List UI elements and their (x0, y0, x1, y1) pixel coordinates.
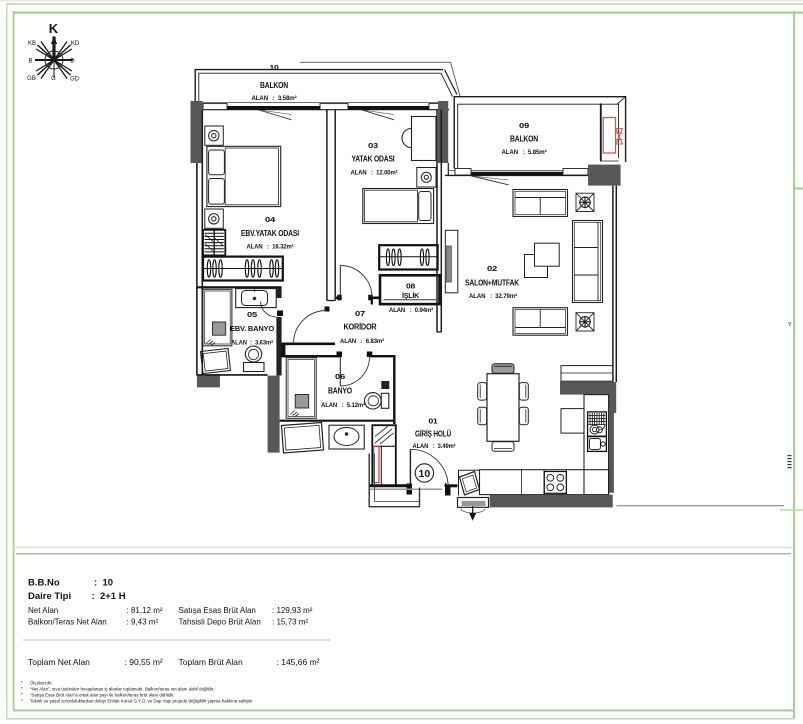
svg-text:GB: GB (27, 76, 36, 82)
svg-text:D: D (70, 59, 75, 65)
svg-text:02: 02 (487, 264, 497, 273)
svg-text:06: 06 (335, 372, 345, 381)
svg-text:Satışa Esas Brüt Alan: Satışa Esas Brüt Alan (179, 606, 256, 615)
svg-text:ALAN : 0.94m²: ALAN : 0.94m² (389, 307, 433, 314)
svg-text:: 9,43 m²: : 9,43 m² (127, 618, 159, 627)
svg-text:ALAN : 6.83m²: ALAN : 6.83m² (340, 338, 384, 345)
svg-text:: 81,12 m²: : 81,12 m² (127, 606, 163, 615)
svg-text:Daire Tipi: Daire Tipi (28, 591, 71, 602)
svg-text:08: 08 (406, 284, 415, 291)
svg-text:İŞLİK: İŞLİK (402, 292, 419, 300)
svg-text:KD: KD (71, 41, 80, 47)
svg-text:: 129,93 m²: : 129,93 m² (272, 606, 313, 615)
svg-text:Toplam Net Alan: Toplam Net Alan (28, 657, 90, 667)
svg-text:ALAN : 3.58m²: ALAN : 3.58m² (252, 95, 297, 102)
svg-text:ALAN : 16.32m²: ALAN : 16.32m² (247, 244, 294, 251)
svg-text:*: * (21, 698, 23, 703)
svg-text:“Net Alan”, sıva üstünden hesa: “Net Alan”, sıva üstünden hesaplanan iç … (30, 687, 214, 692)
svg-text:ALAN : 5.12m²: ALAN : 5.12m² (321, 402, 365, 409)
svg-text:Ölçeksizdir.: Ölçeksizdir. (30, 681, 52, 686)
svg-text:BANYO: BANYO (328, 387, 352, 396)
svg-text:*: * (21, 692, 23, 697)
svg-text:“Satışa Esas Brüt Alan”a ortak: “Satışa Esas Brüt Alan”a ortak alan payı… (30, 693, 174, 698)
svg-text:: 145,66 m²: : 145,66 m² (277, 657, 320, 667)
svg-text:: 90,55 m²: : 90,55 m² (125, 657, 163, 667)
svg-text:: 10: : 10 (94, 578, 113, 589)
svg-text:Y: Y (788, 322, 792, 328)
svg-text:*: * (21, 680, 23, 685)
svg-text:10: 10 (419, 468, 431, 480)
svg-text:10: 10 (270, 63, 279, 72)
svg-text:BALKON: BALKON (510, 135, 538, 144)
svg-text:KB: KB (28, 41, 36, 47)
svg-text:KORİDOR: KORİDOR (344, 323, 377, 332)
svg-text:YATAK ODASI: YATAK ODASI (352, 155, 395, 164)
svg-text:Toplam Brüt Alan: Toplam Brüt Alan (179, 657, 244, 667)
svg-text:EBV.YATAK ODASI: EBV.YATAK ODASI (241, 229, 299, 238)
svg-text:Net Alan: Net Alan (28, 606, 58, 615)
svg-text:ALAN : 12.00m²: ALAN : 12.00m² (351, 170, 398, 177)
svg-text:07: 07 (355, 309, 365, 318)
svg-text:G: G (51, 76, 56, 82)
svg-text:GD: GD (70, 77, 80, 83)
svg-text:Tahsisli Depo Brüt Alan: Tahsisli Depo Brüt Alan (179, 618, 261, 627)
svg-text:ALAN : 5.85m²: ALAN : 5.85m² (502, 149, 547, 156)
svg-text:ALAN : 3.63m²: ALAN : 3.63m² (231, 340, 273, 347)
svg-text:K: K (49, 21, 59, 36)
svg-text:04: 04 (265, 215, 276, 224)
svg-text:01: 01 (429, 417, 438, 426)
svg-text:Teknik ve yasal zorunluluklard: Teknik ve yasal zorunluluklardan dolayı … (30, 699, 253, 704)
svg-text:EBV. BANYO: EBV. BANYO (230, 324, 274, 333)
svg-text:: 2+1 H: : 2+1 H (92, 591, 126, 602)
svg-text:ALAN : 3.49m²: ALAN : 3.49m² (413, 443, 456, 450)
svg-text:B.B.No: B.B.No (28, 578, 60, 589)
svg-text:Balkon/Teras Net Alan: Balkon/Teras Net Alan (28, 618, 107, 627)
svg-text:05: 05 (247, 310, 257, 319)
svg-text:B: B (28, 59, 32, 65)
svg-text:: 15,73 m²: : 15,73 m² (272, 618, 308, 627)
svg-text:SALON+MUTFAK: SALON+MUTFAK (465, 279, 519, 288)
svg-text:03: 03 (368, 141, 378, 150)
svg-text:GİRİŞ HOLÜ: GİRİŞ HOLÜ (415, 430, 451, 439)
svg-text:BALKON: BALKON (260, 81, 288, 90)
svg-text:09: 09 (519, 121, 529, 130)
svg-text:*: * (21, 686, 23, 691)
svg-text:ALAN : 32.79m²: ALAN : 32.79m² (469, 293, 517, 300)
